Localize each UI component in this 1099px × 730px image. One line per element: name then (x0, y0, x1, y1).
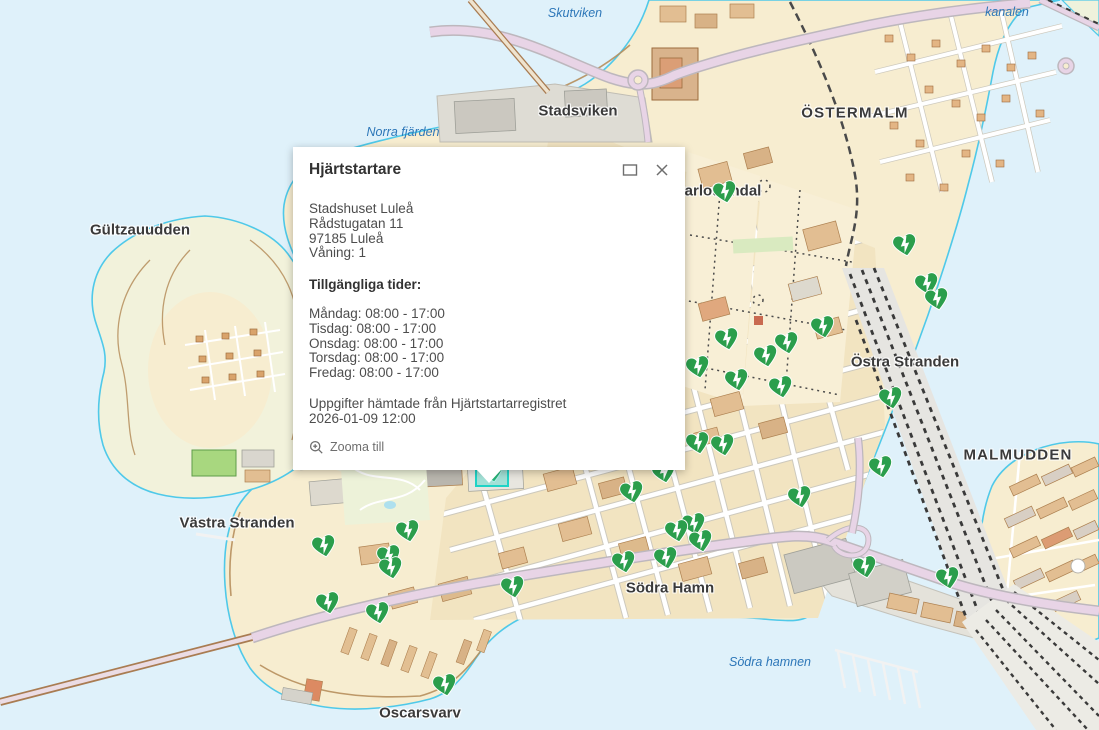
defibrillator-marker[interactable] (610, 549, 638, 575)
close-icon[interactable] (653, 161, 671, 179)
popup-body: Stadshuset LuleåRådstugatan 1197185 Lule… (293, 202, 685, 470)
popup-availability-line: Måndag: 08:00 - 17:00 (309, 307, 669, 322)
map-viewport[interactable]: SkutvikenkanalenNorra fjärdenStadsvikenÖ… (0, 0, 1099, 730)
defibrillator-marker[interactable] (310, 533, 338, 559)
defibrillator-marker[interactable] (891, 232, 919, 258)
popup-title: Hjärtstartare (309, 160, 621, 179)
defibrillator-marker[interactable] (851, 554, 879, 580)
defibrillator-marker[interactable] (877, 385, 905, 411)
popup-availability-line: Fredag: 08:00 - 17:00 (309, 366, 669, 381)
popup-address-line: 97185 Luleå (309, 232, 669, 247)
popup-availability: Måndag: 08:00 - 17:00Tisdag: 08:00 - 17:… (309, 307, 669, 381)
defibrillator-marker[interactable] (709, 432, 737, 458)
defibrillator-marker[interactable] (314, 590, 342, 616)
defibrillator-marker[interactable] (752, 343, 780, 369)
feature-popup: Hjärtstartare Stadshuset LuleåRådstugata… (293, 147, 685, 470)
defibrillator-marker[interactable] (934, 565, 962, 591)
popup-availability-line: Onsdag: 08:00 - 17:00 (309, 337, 669, 352)
defibrillator-marker[interactable] (723, 367, 751, 393)
popup-availability-line: Torsdag: 08:00 - 17:00 (309, 351, 669, 366)
dock-icon[interactable] (621, 161, 639, 179)
zoom-to-icon (309, 440, 324, 455)
popup-address-line: Stadshuset Luleå (309, 202, 669, 217)
defibrillator-marker[interactable] (618, 479, 646, 505)
defibrillator-marker[interactable] (431, 672, 459, 698)
popup-availability-heading: Tillgängliga tider: (309, 278, 669, 293)
popup-address-line: Våning: 1 (309, 246, 669, 261)
defibrillator-marker[interactable] (687, 528, 715, 554)
defibrillator-marker[interactable] (652, 545, 680, 571)
popup-actions (621, 161, 671, 179)
zoom-to-action[interactable]: Zooma till (309, 440, 384, 455)
defibrillator-marker[interactable] (713, 326, 741, 352)
popup-availability-line: Tisdag: 08:00 - 17:00 (309, 322, 669, 337)
popup-source-line: 2026-01-09 12:00 (309, 412, 669, 427)
popup-header: Hjärtstartare (293, 147, 685, 179)
defibrillator-marker[interactable] (394, 518, 422, 544)
defibrillator-marker[interactable] (767, 374, 795, 400)
defibrillator-marker[interactable] (867, 454, 895, 480)
defibrillator-marker[interactable] (923, 286, 951, 312)
popup-address-line: Rådstugatan 11 (309, 217, 669, 232)
zoom-to-label: Zooma till (330, 440, 384, 455)
defibrillator-marker[interactable] (684, 430, 712, 456)
popup-source: Uppgifter hämtade från Hjärtstartarregis… (309, 397, 669, 427)
defibrillator-marker[interactable] (684, 354, 712, 380)
popup-source-line: Uppgifter hämtade från Hjärtstartarregis… (309, 397, 669, 412)
defibrillator-marker[interactable] (711, 179, 739, 205)
defibrillator-marker[interactable] (786, 484, 814, 510)
defibrillator-marker[interactable] (364, 600, 392, 626)
defibrillator-marker[interactable] (499, 574, 527, 600)
popup-address: Stadshuset LuleåRådstugatan 1197185 Lule… (309, 202, 669, 261)
defibrillator-marker[interactable] (377, 555, 405, 581)
defibrillator-marker[interactable] (809, 314, 837, 340)
